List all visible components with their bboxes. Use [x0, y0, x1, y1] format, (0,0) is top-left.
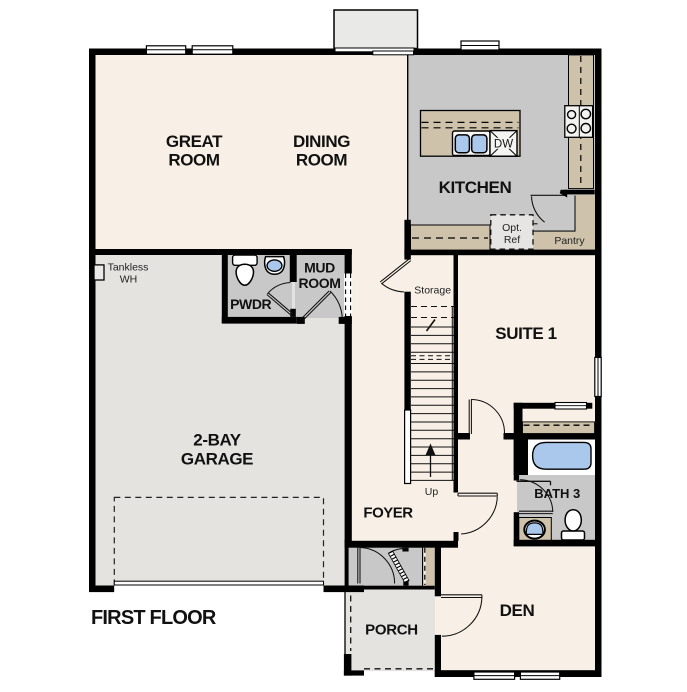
svg-text:Tankless: Tankless	[108, 261, 149, 273]
svg-text:KITCHEN: KITCHEN	[439, 178, 512, 197]
svg-text:SUITE 1: SUITE 1	[495, 324, 556, 343]
svg-text:MUD: MUD	[304, 259, 335, 275]
svg-text:Ref: Ref	[504, 234, 520, 246]
svg-text:Storage: Storage	[414, 284, 451, 296]
svg-text:PORCH: PORCH	[365, 622, 418, 639]
svg-text:Up: Up	[425, 486, 439, 498]
svg-text:ROOM: ROOM	[168, 150, 220, 169]
svg-text:WH: WH	[120, 273, 138, 285]
svg-text:DW: DW	[494, 139, 513, 151]
svg-text:FIRST FLOOR: FIRST FLOOR	[91, 607, 217, 629]
svg-text:2-BAY: 2-BAY	[193, 430, 242, 449]
svg-text:GARAGE: GARAGE	[181, 449, 253, 468]
svg-text:DEN: DEN	[500, 601, 535, 620]
svg-text:DINING: DINING	[293, 132, 350, 151]
svg-text:FOYER: FOYER	[363, 505, 413, 522]
svg-text:PWDR: PWDR	[230, 296, 271, 312]
svg-text:ROOM: ROOM	[299, 275, 341, 291]
svg-text:BATH 3: BATH 3	[534, 486, 580, 501]
svg-text:ROOM: ROOM	[296, 150, 348, 169]
svg-text:Opt.: Opt.	[502, 222, 522, 234]
svg-text:Pantry: Pantry	[554, 235, 585, 247]
svg-text:GREAT: GREAT	[166, 132, 223, 151]
